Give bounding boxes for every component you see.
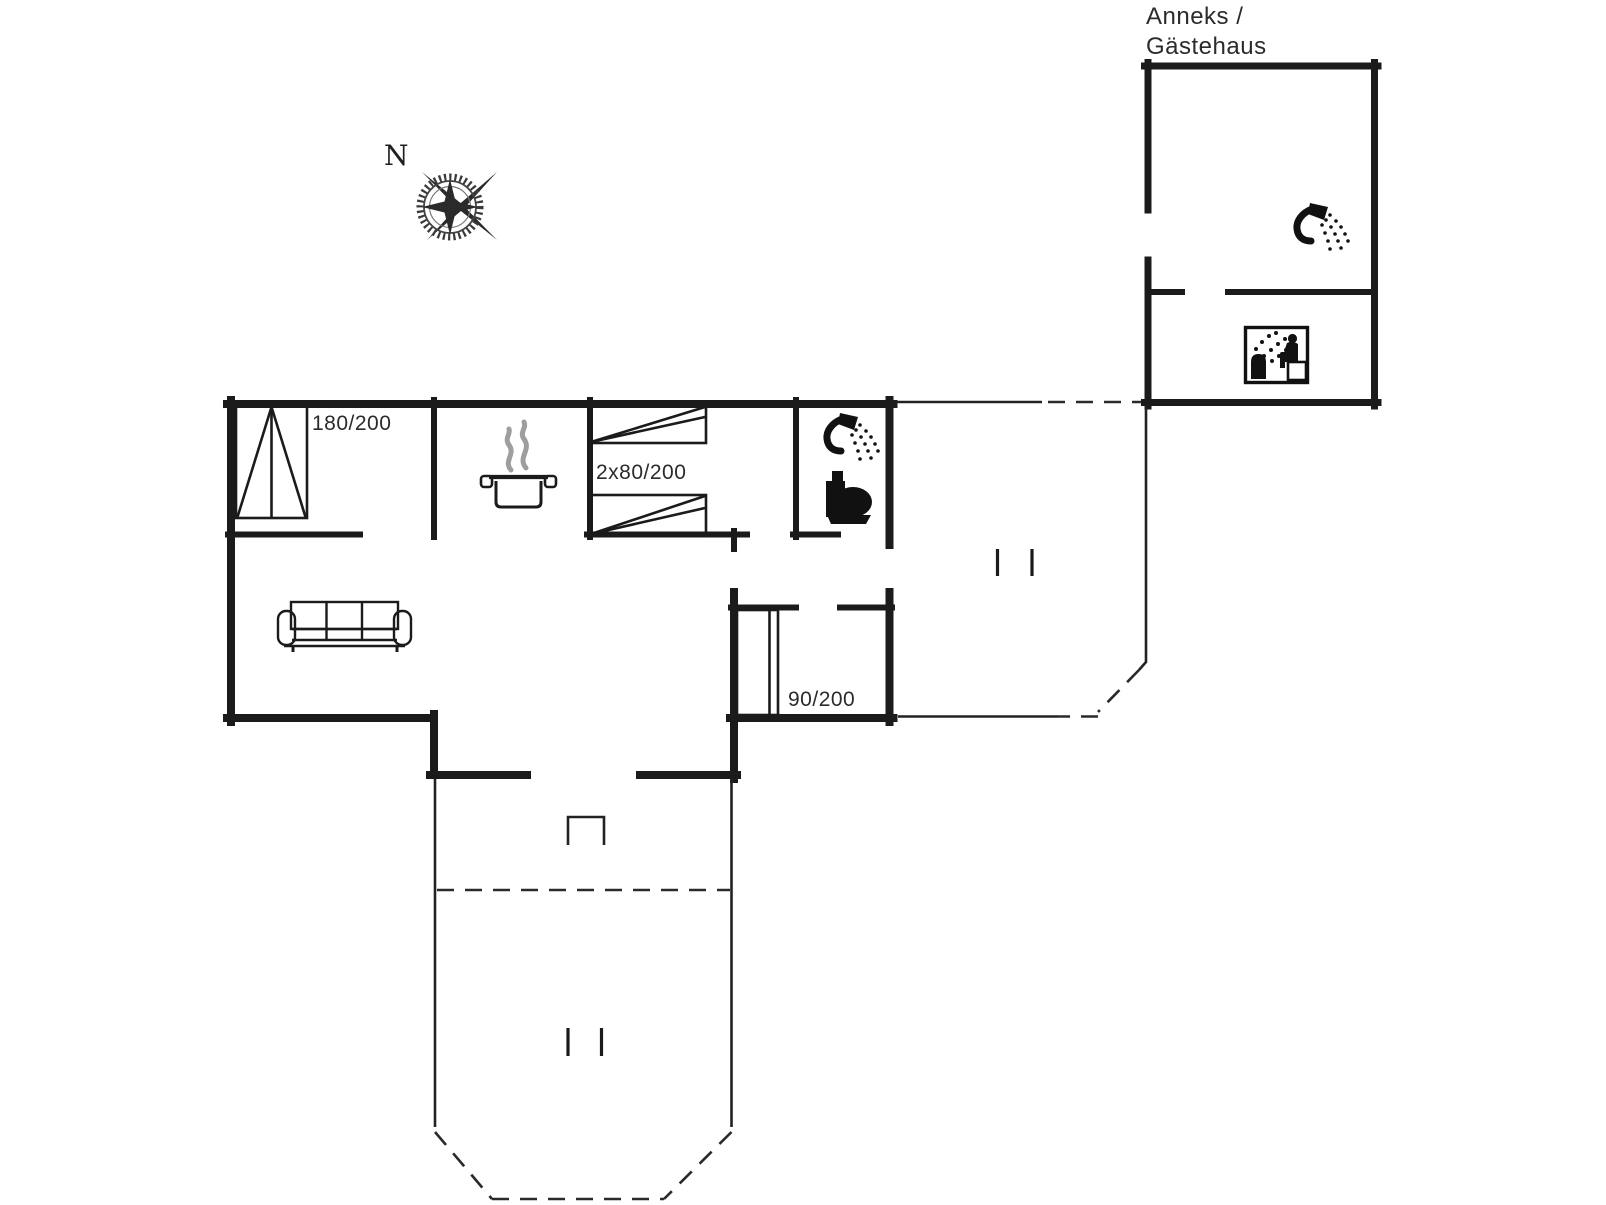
entrance-step-mark: [568, 817, 604, 845]
compass-north-label: N: [384, 139, 409, 172]
terrace-outline: [435, 402, 1146, 1127]
compass-rose: [420, 172, 497, 240]
toilet-icon: [826, 471, 872, 524]
bed-size-label-single: 90/200: [788, 688, 855, 712]
floor-plan: Anneks / Gästehaus N 180/200 2x80/200 90…: [0, 0, 1606, 1205]
sofa-icon: [278, 602, 411, 652]
dashed-boundaries: [435, 402, 1141, 1199]
opening-ticks: [568, 549, 1032, 1056]
annex-label-line1: Anneks /: [1146, 2, 1243, 32]
bed-size-label-twin: 2x80/200: [596, 461, 686, 485]
shower-icon: [1297, 203, 1350, 251]
sauna-icon: [1246, 328, 1308, 383]
double-bed-icon: [236, 406, 307, 518]
single-bed-icon: [737, 610, 778, 715]
annex-label-line2: Gästehaus: [1146, 32, 1267, 62]
cooking-pot-icon: [481, 422, 556, 507]
steam-squiggle: [522, 422, 526, 468]
shower-icon: [827, 413, 880, 461]
bed-size-label-double: 180/200: [312, 412, 391, 436]
steam-squiggle: [507, 429, 511, 470]
floor-plan-drawing: [0, 0, 1606, 1205]
